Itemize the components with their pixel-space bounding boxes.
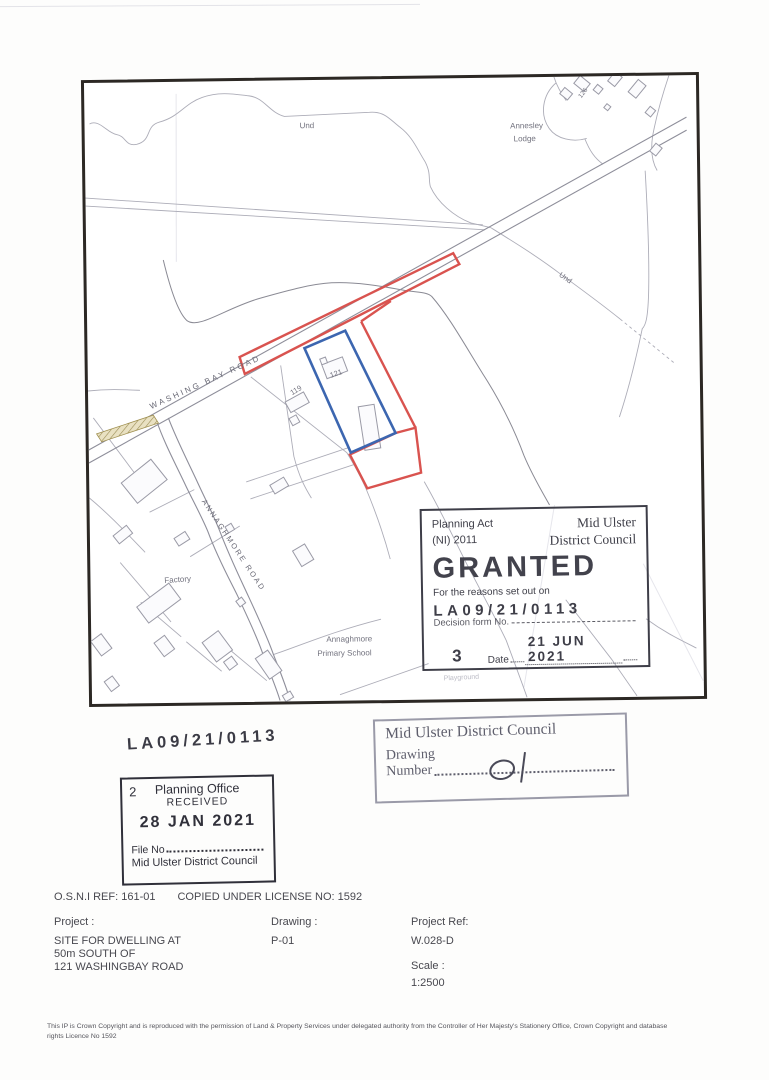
received-date-stamp: 2 Planning Office RECEIVED 28 JAN 2021 F… bbox=[120, 774, 276, 885]
map-label-und-2: Und bbox=[557, 270, 573, 285]
council-name-line2: District Council bbox=[549, 531, 636, 549]
project-ref-label: Project Ref: bbox=[411, 916, 468, 928]
map-label-annesley: Annesley bbox=[510, 121, 543, 130]
drawing-stamp-council: Mid Ulster District Council bbox=[385, 719, 615, 743]
received-label: RECEIVED bbox=[130, 795, 264, 810]
osni-reference-line: O.S.N.I REF: 161-01COPIED UNDER LICENSE … bbox=[54, 891, 384, 903]
copyright-line2: rights Licence No 1592 bbox=[47, 1033, 117, 1040]
planning-act-line2: (NI) 2011 bbox=[432, 533, 493, 550]
right-stream bbox=[616, 171, 651, 417]
planning-act-line1: Planning Act bbox=[432, 517, 493, 534]
map-label-annaghmore-road: ANNAGHMORE ROAD bbox=[200, 498, 268, 593]
und-boundary bbox=[491, 226, 620, 321]
scan-artifact-line bbox=[0, 4, 420, 7]
decision-form-label: Decision form No. bbox=[433, 616, 509, 628]
map-label-washing-bay-road: WASHING BAY ROAD bbox=[148, 353, 262, 411]
map-label-school-2: Primary School bbox=[317, 648, 372, 658]
map-label-und-1: Und bbox=[299, 121, 314, 130]
decision-date: 21 JUN 2021 bbox=[525, 632, 622, 665]
access-strip-outline bbox=[238, 253, 461, 374]
drawing-number-stamp: Mid Ulster District Council Drawing Numb… bbox=[373, 712, 629, 803]
date-dots bbox=[623, 659, 637, 660]
date-label: Date bbox=[488, 654, 509, 665]
project-line3: 121 WASHINGBAY ROAD bbox=[54, 961, 183, 974]
washing-bay-road-edge bbox=[85, 130, 691, 463]
date-dots bbox=[510, 661, 524, 662]
application-reference-stamp: LA09/21/0113 bbox=[127, 726, 280, 754]
site-curtilage-outline bbox=[304, 330, 396, 453]
received-council-name: Mid Ulster District Council bbox=[132, 855, 266, 870]
decision-form-dashes bbox=[511, 620, 635, 623]
drawing-ref-value: P-01 bbox=[271, 935, 294, 948]
granted-reasons-text: For the reasons set out on bbox=[433, 584, 637, 599]
map-label-lodge: Lodge bbox=[514, 134, 537, 143]
application-site-outline bbox=[238, 253, 462, 490]
file-no-dots bbox=[167, 849, 264, 853]
license-ref: COPIED UNDER LICENSE NO: 1592 bbox=[177, 891, 362, 903]
council-name-line1: Mid Ulster bbox=[549, 514, 636, 532]
site-east-boundary bbox=[163, 255, 549, 510]
map-label-factory: Factory bbox=[164, 574, 191, 585]
project-ref-value: W.028-D bbox=[411, 935, 454, 948]
scale-label: Scale : bbox=[411, 960, 445, 972]
project-line2: 50m SOUTH OF bbox=[54, 948, 135, 961]
number-dots bbox=[434, 769, 614, 776]
project-line1: SITE FOR DWELLING AT bbox=[54, 935, 181, 948]
granted-title: GRANTED bbox=[432, 549, 637, 586]
received-date: 28 JAN 2021 bbox=[131, 812, 265, 833]
osni-ref: O.S.N.I REF: 161-01 bbox=[54, 891, 155, 903]
crown-copyright-notice: This IP is Crown Copyright and is reprod… bbox=[47, 1022, 759, 1042]
number-label: Number bbox=[386, 763, 432, 780]
copyright-line1: This IP is Crown Copyright and is reprod… bbox=[47, 1023, 667, 1030]
drawing-ref-label: Drawing : bbox=[271, 916, 317, 928]
map-label-playground: Playground bbox=[444, 674, 480, 683]
map-label-126: 126 bbox=[577, 87, 589, 100]
scale-value: 1:2500 bbox=[411, 977, 445, 990]
file-no-label: File No bbox=[131, 844, 165, 857]
map-label-school-1: Annaghmore bbox=[326, 634, 372, 644]
scanned-planning-document: Und Annesley Lodge 126 Und WASHING BAY R… bbox=[0, 0, 769, 1080]
hatched-verge bbox=[96, 415, 158, 442]
project-label: Project : bbox=[54, 916, 94, 928]
granted-decision-stamp: Planning Act (NI) 2011 Mid Ulster Distri… bbox=[420, 505, 651, 671]
received-corner-number: 2 bbox=[129, 784, 137, 799]
decision-number: 3 bbox=[452, 646, 462, 666]
